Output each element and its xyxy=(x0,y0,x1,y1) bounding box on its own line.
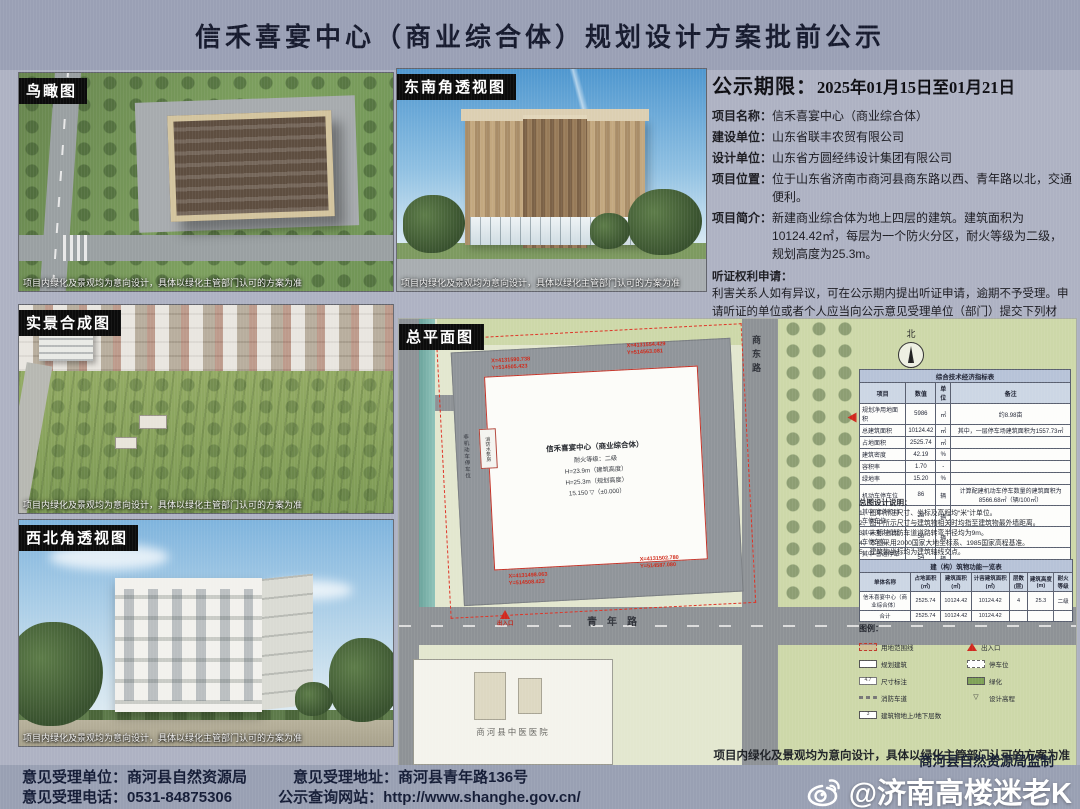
indicator-table-header: 单位 xyxy=(936,383,951,404)
indicator-table-header-row: 项目数值单位备注 xyxy=(860,383,1071,404)
elevation-top: 15.150 xyxy=(569,489,588,497)
cell-unit: - xyxy=(936,461,951,473)
building-front-facade xyxy=(115,578,262,712)
public-notice-poster: 信禾喜宴中心（商业综合体）规划设计方案批前公示 鸟瞰图 项目内绿化及景观均为意向… xyxy=(0,0,1080,809)
cell-footprint: 2525.74 xyxy=(911,611,941,622)
cell-remark: 其中，一层停车场建筑面积为1557.73㎡ xyxy=(951,425,1071,437)
tree-texture xyxy=(19,375,393,513)
fire-lane-swatch xyxy=(859,696,877,699)
hearing-title: 听证权利申请： xyxy=(712,271,793,283)
north-arrow: 北 xyxy=(893,327,929,368)
legend: 图例： 用地范围线 规划建筑 4.7尺寸标注 消防车道 3建筑物地上/地下层数 … xyxy=(859,623,1073,723)
hospital-label: 商河县中医医院 xyxy=(414,726,612,738)
coordinate-label: X=4131502.780 Y=514587.080 xyxy=(640,555,680,570)
farm-building xyxy=(139,415,167,429)
accepting-unit: 意见受理单位：商河县自然资源局 xyxy=(22,768,247,788)
accepting-phone: 意见受理电话：0531-84875306 xyxy=(22,788,232,808)
cell-value: 42.19 xyxy=(906,449,936,461)
legend-label: 出入口 xyxy=(981,642,1001,652)
cell-name: 合计 xyxy=(860,611,911,622)
building-name: 信禾喜宴中心（商业综合体） xyxy=(546,438,644,454)
panel-label-realscene: 实景合成图 xyxy=(19,310,121,336)
panel-caption-birdseye: 项目内绿化及景观均为意向设计，具体以绿化主管部门认可的方案为准 xyxy=(23,276,302,289)
cell-item: 建筑密度 xyxy=(860,449,906,461)
legend-item: 用地范围线 xyxy=(859,642,967,652)
indicator-table-header: 备注 xyxy=(951,383,1071,404)
panel-birdseye: 鸟瞰图 项目内绿化及景观均为意向设计，具体以绿化主管部门认可的方案为准 xyxy=(18,72,394,292)
panel-label-northwest: 西北角透视图 xyxy=(19,525,138,551)
cell-item: 绿地率 xyxy=(860,473,906,485)
notice-field-value: 山东省联丰农贸有限公司 xyxy=(772,128,904,146)
accepting-address: 意见受理地址：商河县青年路136号 xyxy=(293,768,528,788)
notice-field-label: 项目简介： xyxy=(712,209,772,263)
legend-label: 绿化 xyxy=(989,676,1002,686)
coordinate-label: X=4131498.063 Y=514508.423 xyxy=(508,572,548,587)
cell-area: 10124.42 xyxy=(940,592,971,611)
function-table-header: 占地面积(㎡) xyxy=(911,573,941,592)
legend-item: 3建筑物地上/地下层数 xyxy=(859,710,967,720)
cell-item: 容积率 xyxy=(860,461,906,473)
design-note: 5、建筑物坐标均为建筑轴线交点。 xyxy=(859,548,1073,558)
legend-label: 用地范围线 xyxy=(881,642,914,652)
notice-field: 项目简介： 新建商业综合体为地上四层的建筑。建筑面积为10124.42㎡，每层为… xyxy=(712,209,1074,263)
aerial-building xyxy=(167,110,335,222)
legend-label: 停车位 xyxy=(989,659,1009,669)
function-table-header-row: 单体名称占地面积(㎡)建筑面积(㎡)计容建筑面积(㎡)层数(层)建筑高度(m)耐… xyxy=(860,573,1073,592)
notice-field: 建设单位： 山东省联丰农贸有限公司 xyxy=(712,128,1074,146)
legend-item: 消防车道 xyxy=(859,693,967,703)
function-table-header: 耐火等级 xyxy=(1054,573,1073,592)
notice-field-value: 信禾喜宴中心（商业综合体） xyxy=(772,107,928,125)
function-table-header: 单体名称 xyxy=(860,573,911,592)
cell-floors: 4 xyxy=(1009,592,1028,611)
function-table-body: 信禾喜宴中心（商业综合体） 2525.74 10124.42 10124.42 … xyxy=(860,592,1073,622)
supervisor-credit: 商河县自然资源局监制 xyxy=(919,750,1054,770)
cell-fire xyxy=(1054,611,1073,622)
floors-swatch: 3 xyxy=(859,711,877,719)
notice-period: 公示期限：2025年01月15日至01月21日 xyxy=(712,70,1074,99)
legend-item: 停车位 xyxy=(967,659,1067,669)
indicator-table-header: 数值 xyxy=(906,383,936,404)
notice-period-value: 2025年01月15日至01月21日 xyxy=(817,78,1015,97)
design-notes: 总图设计说明： 1、图中所注尺寸、坐标及高程均“米”计单位。2、图中所示尺寸与建… xyxy=(859,497,1073,558)
inquiry-website: 公示查询网站：http://www.shanghe.gov.cn/ xyxy=(278,788,581,808)
dimension-swatch: 4.7 xyxy=(859,677,877,685)
hospital-building xyxy=(474,672,506,720)
cell-value: 5986 xyxy=(906,404,936,425)
panel-caption-northwest: 项目内绿化及景观均为意向设计，具体以绿化主管部门认可的方案为准 xyxy=(23,731,302,744)
cell-unit: % xyxy=(936,473,951,485)
table-row: 规划净用地面积 5986 ㎡ 约8.98亩 xyxy=(860,404,1071,425)
cell-value: 2525.74 xyxy=(906,437,936,449)
function-table-header: 建筑高度(m) xyxy=(1028,573,1054,592)
legend-item: 绿化 xyxy=(967,676,1067,686)
legend-label: 建筑物地上/地下层数 xyxy=(881,710,941,720)
building-height1: H=23.9m（建筑高度） xyxy=(565,463,628,475)
design-note: 1、图中所注尺寸、坐标及高程均“米”计单位。 xyxy=(859,509,1073,519)
design-note: 4、本图采用2000国家大地坐标系、1985国家高程基准。 xyxy=(859,539,1073,549)
cell-remark xyxy=(951,461,1071,473)
cell-fire: 二级 xyxy=(1054,592,1073,611)
site-group: 信禾喜宴中心（商业综合体） 耐火等级：二级 H=23.9m（建筑高度） H=25… xyxy=(428,318,765,623)
entrance-triangle-icon xyxy=(500,610,510,619)
cell-far-area: 10124.42 xyxy=(971,592,1009,611)
coordinate-label: X=4131590.738 Y=514505.423 xyxy=(491,356,531,371)
page-title: 信禾喜宴中心（商业综合体）规划设计方案批前公示 xyxy=(195,17,885,54)
function-table-header: 建筑面积(㎡) xyxy=(940,573,971,592)
cell-name: 信禾喜宴中心（商业综合体） xyxy=(860,592,911,611)
cell-value: 1.70 xyxy=(906,461,936,473)
elevation-zero: ▽（±0.000） xyxy=(589,487,625,496)
annex-pump-room: 消防水泵房 xyxy=(479,428,498,469)
panel-label-siteplan: 总平面图 xyxy=(399,324,484,350)
legend-item: 出入口 xyxy=(967,642,1067,652)
header-band: 信禾喜宴中心（商业综合体）规划设计方案批前公示 xyxy=(0,0,1080,70)
design-notes-title: 总图设计说明： xyxy=(859,497,1073,508)
panel-siteplan: 信禾喜宴中心（商业综合体） 耐火等级：二级 H=23.9m（建筑高度） H=25… xyxy=(398,318,1077,767)
panel-northwest: 西北角透视图 项目内绿化及景观均为意向设计，具体以绿化主管部门认可的方案为准 xyxy=(18,519,394,747)
elevation-swatch: ▽ xyxy=(967,694,985,702)
cell-far-area: 10124.42 xyxy=(971,611,1009,622)
legend-label: 尺寸标注 xyxy=(881,676,907,686)
panel-caption-realscene: 项目内绿化及景观均为意向设计，具体以绿化主管部门认可的方案为准 xyxy=(23,498,302,511)
notice-field-label: 设计单位： xyxy=(712,149,772,167)
cell-item: 总建筑面积 xyxy=(860,425,906,437)
boundary-line-swatch xyxy=(859,643,877,651)
tree xyxy=(329,638,394,722)
notice-field: 项目名称： 信禾喜宴中心（商业综合体） xyxy=(712,107,1074,125)
function-table-title: 建（构）筑物功能一览表 xyxy=(859,559,1073,572)
entrance-label: 出入口 xyxy=(497,619,514,627)
cell-remark xyxy=(951,449,1071,461)
parking-swatch xyxy=(967,660,985,668)
function-table: 建（构）筑物功能一览表 单体名称占地面积(㎡)建筑面积(㎡)计容建筑面积(㎡)层… xyxy=(859,559,1073,622)
coordinate-label: X=4131554.429 Y=514563.081 xyxy=(626,341,666,356)
design-notes-list: 1、图中所注尺寸、坐标及高程均“米”计单位。2、图中所示尺寸与建筑物相关时均指至… xyxy=(859,509,1073,558)
cell-value: 15.20 xyxy=(906,473,936,485)
notice-field-value: 位于山东省济南市商河县商东路以西、青年路以北，交通便利。 xyxy=(772,170,1074,206)
legend-item: 4.7尺寸标注 xyxy=(859,676,967,686)
building-footprint: 信禾喜宴中心（商业综合体） 耐火等级：二级 H=23.9m（建筑高度） H=25… xyxy=(484,366,708,571)
cell-floors xyxy=(1009,611,1028,622)
indicator-table-header: 项目 xyxy=(860,383,906,404)
cell-height xyxy=(1028,611,1054,622)
function-table-header: 计容建筑面积(㎡) xyxy=(971,573,1009,592)
cell-unit: % xyxy=(936,449,951,461)
cell-area: 10124.42 xyxy=(940,611,971,622)
legend-label: 消防车道 xyxy=(881,693,907,703)
cell-remark: 约8.98亩 xyxy=(951,404,1071,425)
cell-footprint: 2525.74 xyxy=(911,592,941,611)
north-label: 北 xyxy=(893,327,929,340)
planned-building-swatch xyxy=(859,660,877,668)
table-row: 容积率 1.70 - xyxy=(860,461,1071,473)
panel-southeast: 东南角透视图 项目内绿化及景观均为意向设计，具体以绿化主管部门认可的方案为准 xyxy=(396,68,707,292)
notice-field-value: 山东省方圆经纬设计集团有限公司 xyxy=(772,149,952,167)
road-label-shangdong: 商东路 xyxy=(750,335,763,377)
hospital-building xyxy=(518,678,542,714)
road-label-qingnian: 青年路 xyxy=(587,613,647,628)
legend-label: 设计高程 xyxy=(989,693,1015,703)
entrance-south: 出入口 xyxy=(497,610,514,627)
function-table-header: 层数(层) xyxy=(1009,573,1028,592)
indicator-table-title: 综合技术经济指标表 xyxy=(859,369,1071,382)
notice-field-label: 建设单位： xyxy=(712,128,772,146)
watermark: @济南高楼迷老K xyxy=(806,770,1072,809)
entrance-triangle-icon xyxy=(848,413,857,423)
design-note: 2、图中所示尺寸与建筑物相关时均指至建筑物最外墙距离。 xyxy=(859,519,1073,529)
legend-title: 图例： xyxy=(859,623,1073,634)
panel-label-southeast: 东南角透视图 xyxy=(397,74,516,100)
birdseye-render xyxy=(19,73,393,291)
cell-item: 规划净用地面积 xyxy=(860,404,906,425)
cell-unit: ㎡ xyxy=(936,404,951,425)
table-row: 信禾喜宴中心（商业综合体） 2525.74 10124.42 10124.42 … xyxy=(860,592,1073,611)
notice-field-label: 项目位置： xyxy=(712,170,772,206)
table-row: 建筑密度 42.19 % xyxy=(860,449,1071,461)
building-height2: H=25.3m（规划高度） xyxy=(565,474,628,486)
weibo-icon xyxy=(806,775,842,807)
cell-unit: ㎡ xyxy=(936,425,951,437)
table-row: 总建筑面积 10124.42 ㎡ 其中，一层停车场建筑面积为1557.73㎡ xyxy=(860,425,1071,437)
cell-remark xyxy=(951,473,1071,485)
design-note: 3、未标注消防车道道路转弯半径均为9m。 xyxy=(859,529,1073,539)
north-arrow-icon xyxy=(898,342,924,368)
entrance-swatch xyxy=(967,643,977,651)
notice-field-label: 项目名称： xyxy=(712,107,772,125)
greenery-swatch xyxy=(967,677,985,685)
building-fire-rating: 耐火等级：二级 xyxy=(574,452,618,463)
legend-label: 规划建筑 xyxy=(881,659,907,669)
table-row: 占地面积 2525.74 ㎡ xyxy=(860,437,1071,449)
notice-field: 项目位置： 位于山东省济南市商河县商东路以西、青年路以北，交通便利。 xyxy=(712,170,1074,206)
notice-field-value: 新建商业综合体为地上四层的建筑。建筑面积为10124.42㎡，每层为一个防火分区… xyxy=(772,209,1074,263)
cell-value: 10124.42 xyxy=(906,425,936,437)
panel-label-birdseye: 鸟瞰图 xyxy=(19,78,87,104)
panel-caption-southeast: 项目内绿化及景观均为意向设计，具体以绿化主管部门认可的方案为准 xyxy=(401,276,680,289)
notice-fields: 项目名称： 信禾喜宴中心（商业综合体） 建设单位： 山东省联丰农贸有限公司 设计… xyxy=(712,107,1074,263)
legend-item: ▽设计高程 xyxy=(967,693,1067,703)
cell-unit: ㎡ xyxy=(936,437,951,449)
northwest-building xyxy=(115,578,313,712)
legend-item: 规划建筑 xyxy=(859,659,967,669)
building-elevation: 15.150 ▽（±0.000） xyxy=(569,485,626,497)
notice-field: 设计单位： 山东省方圆经纬设计集团有限公司 xyxy=(712,149,1074,167)
cell-item: 占地面积 xyxy=(860,437,906,449)
legend-grid: 用地范围线 规划建筑 4.7尺寸标注 消防车道 3建筑物地上/地下层数 出入口 … xyxy=(859,638,1073,723)
hospital-block: 商河县中医医院 xyxy=(413,659,613,765)
watermark-handle: @济南高楼迷老K xyxy=(849,770,1072,809)
panel-realscene: 实景合成图 项目内绿化及景观均为意向设计，具体以绿化主管部门认可的方案为准 xyxy=(18,304,394,514)
cell-remark xyxy=(951,437,1071,449)
table-row: 合计 2525.74 10124.42 10124.42 xyxy=(860,611,1073,622)
lawn-east-trees xyxy=(780,319,858,607)
cell-height: 25.3 xyxy=(1028,592,1054,611)
notice-period-label: 公示期限： xyxy=(712,76,817,98)
farm-building xyxy=(115,437,137,449)
aerial-crosswalk xyxy=(63,235,91,261)
table-row: 绿地率 15.20 % xyxy=(860,473,1071,485)
